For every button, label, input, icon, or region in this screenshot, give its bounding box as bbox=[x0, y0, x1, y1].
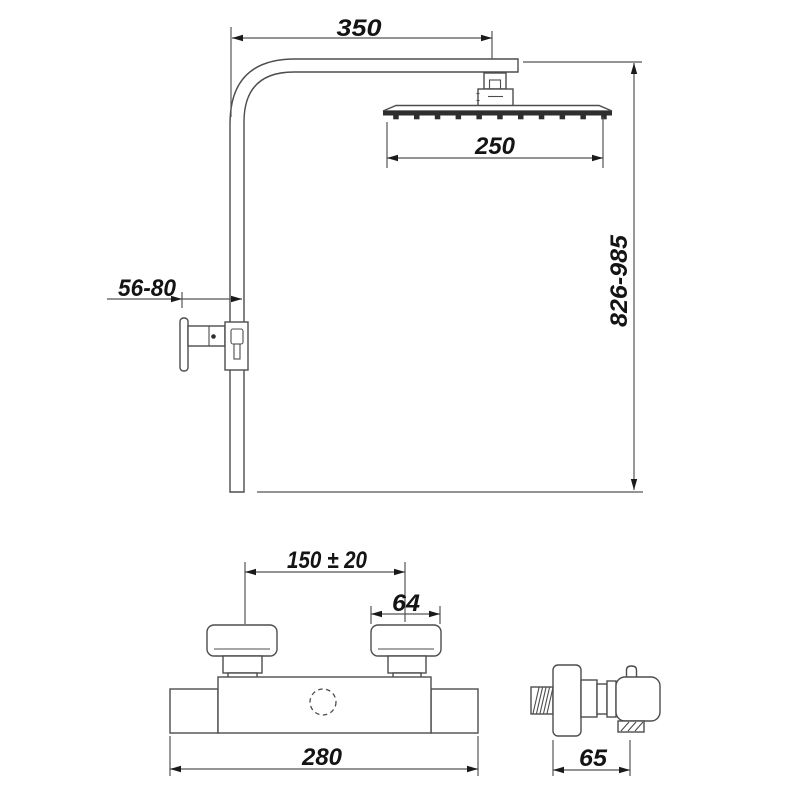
arrowhead bbox=[619, 767, 630, 773]
arrowhead bbox=[592, 155, 603, 161]
dimension-wall-distance: 56-80 bbox=[107, 275, 242, 308]
arrowhead bbox=[553, 767, 564, 773]
bracket-arm bbox=[188, 326, 225, 346]
handle-cap bbox=[371, 625, 441, 656]
handle-neck bbox=[223, 656, 262, 673]
valve-body bbox=[616, 677, 660, 721]
connector-step-2 bbox=[597, 684, 607, 714]
arrowhead bbox=[429, 611, 440, 617]
technical-drawing-page: 350 250 826-985 56-80 bbox=[0, 0, 800, 800]
arrowhead bbox=[387, 155, 398, 161]
inlet-connector-left bbox=[170, 689, 218, 733]
arrowhead bbox=[394, 569, 405, 575]
dim-wall-distance-label: 56-80 bbox=[118, 275, 177, 302]
handle-cap bbox=[207, 625, 277, 656]
dim-handle-spacing-label: 150 ± 20 bbox=[287, 547, 368, 574]
inlet-connector-right bbox=[431, 689, 478, 733]
wall-bracket bbox=[180, 318, 248, 371]
arrowhead bbox=[481, 35, 492, 41]
riser-pipe-and-arm bbox=[230, 59, 518, 492]
mixer-front-view bbox=[170, 625, 478, 733]
head-plate-band bbox=[383, 111, 612, 116]
arrowhead bbox=[232, 35, 243, 41]
arrowhead bbox=[170, 766, 181, 772]
shower-technical-drawing: 350 250 826-985 56-80 bbox=[0, 0, 800, 800]
arrowhead bbox=[631, 479, 637, 490]
connector-step-3 bbox=[607, 681, 616, 717]
dimension-body-width: 280 bbox=[170, 736, 478, 776]
dimension-height-range: 826-985 bbox=[257, 62, 643, 492]
dimension-head-width: 250 bbox=[387, 117, 603, 168]
dim-head-width-label: 250 bbox=[474, 133, 516, 160]
dim-handle-width-label: 64 bbox=[392, 590, 420, 617]
handle-neck bbox=[388, 656, 426, 673]
arrowhead bbox=[631, 63, 637, 74]
arrowhead bbox=[467, 766, 478, 772]
dimension-mixer-depth: 65 bbox=[553, 740, 630, 776]
spray-nozzles bbox=[393, 116, 607, 120]
mixer-side-view bbox=[531, 665, 660, 736]
left-handle bbox=[207, 625, 277, 678]
overhead-shower-head bbox=[383, 73, 612, 119]
top-pin bbox=[627, 666, 637, 677]
dim-mixer-depth-label: 65 bbox=[579, 745, 608, 772]
right-handle bbox=[371, 625, 441, 678]
dim-arm-reach-label: 350 bbox=[337, 15, 383, 42]
dim-height-range-label: 826-985 bbox=[606, 234, 633, 327]
wall-flange bbox=[180, 318, 188, 371]
ball-joint bbox=[484, 73, 506, 89]
dim-body-width-label: 280 bbox=[301, 744, 343, 771]
bracket-screw bbox=[211, 334, 216, 339]
arrowhead bbox=[245, 569, 256, 575]
wall-escutcheon bbox=[553, 665, 581, 736]
connector-step-1 bbox=[581, 680, 597, 717]
mixer-body bbox=[218, 677, 431, 733]
shower-column-view bbox=[180, 59, 612, 492]
arrowhead bbox=[371, 611, 382, 617]
head-plate bbox=[383, 106, 612, 112]
